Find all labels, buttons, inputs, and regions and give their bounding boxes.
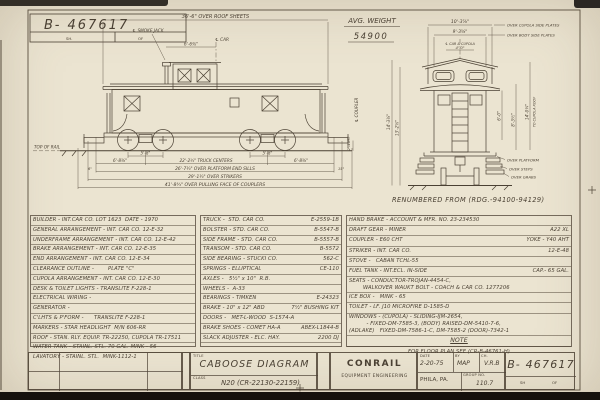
of-label-small: OF bbox=[552, 380, 557, 385]
spec-row: SIDE BEARING - STUCKI CO.562-C bbox=[201, 255, 341, 265]
spec-row: TRANSOM - STD. CAR CO.B-5572 bbox=[201, 245, 341, 255]
side-view-drawing bbox=[60, 63, 352, 157]
of-label: OF bbox=[138, 36, 143, 41]
spec-value: E-24323 bbox=[317, 294, 339, 303]
dim-end-right: 6'-8⅜" bbox=[294, 158, 308, 163]
scan-edge-artifact bbox=[574, 0, 600, 8]
spec-row: BEARINGS - TIMKENE-24323 bbox=[201, 294, 341, 304]
spec-label: BEARINGS - TIMKEN bbox=[203, 294, 256, 303]
spec-label: SIDE FRAME - STD. CAR CO. bbox=[203, 236, 278, 245]
checked-value: V.R.B bbox=[484, 360, 500, 367]
dwg-number-title-box: B- 467617 SH OF bbox=[505, 352, 575, 390]
spec-label: AXLES - 5½" x 10" R.B. bbox=[203, 275, 270, 284]
dim-body-plates-label: OVER BODY SIDE PLATES bbox=[507, 33, 555, 38]
renumbered-note: RENUMBERED FROM (RDG.-94100-94129) bbox=[392, 196, 544, 204]
by-label: BY bbox=[455, 354, 460, 358]
spec-line: - FIXED-DM-7585-3, (BODY) RAISED-DM-5410… bbox=[349, 321, 569, 328]
avg-weight: AVG. WEIGHT 54900 bbox=[344, 17, 400, 42]
side-view-dim-text: 36'-6" OVER ROOF SHEETS ℄ SMOKE JACK ℄ C… bbox=[34, 14, 359, 188]
spec-row: GENERAL ARRANGEMENT - INT. CAR CO. 12-E-… bbox=[31, 226, 195, 236]
spec-row: GENERATOR - bbox=[31, 304, 195, 314]
spec-row: CLEARANCE OUTLINE - PLATE "C" bbox=[31, 265, 195, 275]
dim-roof-sheets: 36'-6" OVER ROOF SHEETS bbox=[182, 14, 250, 20]
spec-row: C'LHTS & P'FORM - TRANSLITE F-228-1 bbox=[31, 314, 195, 324]
dim-truck-centers: 22'-2½" TRUCK CENTERS bbox=[180, 158, 233, 163]
department-name: EQUIPMENT ENGINEERING bbox=[331, 371, 418, 381]
dim-strikers: 29'-1¼" OVER STRIKERS bbox=[188, 174, 242, 180]
spec-row: UNDERFRAME ARRANGEMENT - INT. CAR CO. 12… bbox=[31, 236, 195, 246]
date-block-divider bbox=[453, 353, 454, 372]
spec-table-left-column: BUILDER - INT.CAR CO. LOT 1623 DATE - 19… bbox=[30, 215, 196, 347]
spec-value: ABEX-L1844-B bbox=[301, 324, 339, 333]
group-label: GROUP NO. bbox=[463, 373, 485, 377]
dim-wheelbase-left: 5'-8" bbox=[141, 151, 151, 156]
title-box: TITLE CABOOSE DIAGRAM CLASS N20 (CR-2213… bbox=[190, 352, 317, 390]
spec-row: AXLES - 5½" x 10" R.B. bbox=[201, 275, 341, 285]
end-view-drawing bbox=[408, 59, 512, 191]
revision-strip bbox=[28, 352, 182, 390]
dim-cl-car: ℄ CAR bbox=[215, 37, 229, 42]
dim-height-left-2: 13'-2⅝" bbox=[395, 120, 400, 136]
spec-value: 12-E-48 bbox=[548, 247, 569, 256]
dim-wheelbase-right: 5'-8" bbox=[263, 151, 273, 156]
title-block-spacer-cell bbox=[317, 352, 330, 390]
spec-row: SPRINGS - ELLIPTICALCE-110 bbox=[201, 265, 341, 275]
dim-end-left: 6'-8⅜" bbox=[113, 158, 127, 163]
checked-label: CH. bbox=[481, 354, 488, 358]
spec-label: ICE BOX - MINK - 65 bbox=[349, 293, 406, 302]
avg-weight-value: 54900 bbox=[354, 32, 389, 42]
spec-row: TOILET - LF. J10 MICROFIRE D-1585-D bbox=[347, 303, 571, 313]
spec-value: CAP.- 65 GAL. bbox=[533, 267, 569, 276]
dim-body-plates: 9'-3⅝" bbox=[453, 29, 468, 35]
dim-height-body: 8'-3½" bbox=[511, 113, 516, 127]
spec-value: 562-C bbox=[323, 255, 339, 264]
drawing-number: B- 467617 bbox=[44, 18, 129, 33]
dim-couplers: 41'-8¾" OVER PULLING FACE OF COUPLERS bbox=[165, 182, 266, 188]
spec-value: 2200 DJ bbox=[318, 334, 339, 343]
date-label: DATE bbox=[420, 354, 430, 358]
spec-row: BRAKE SHOES - COMET HA-AABEX-L1844-B bbox=[201, 324, 341, 334]
spec-value: 7½" BUSHING KIT bbox=[291, 304, 339, 313]
title-block-spacer-cell bbox=[182, 352, 190, 390]
revision-divider bbox=[59, 353, 60, 391]
caboose-diagram-sheet: B- 467617 SH. OF AVG. WEIGHT 54900 bbox=[0, 0, 600, 400]
over-grabs-label: OVER GRABS bbox=[511, 175, 537, 180]
spec-row: DRAFT GEAR - MINERA22 XL bbox=[347, 226, 571, 236]
spec-row: BRAKE - 10" x 12" ABD7½" BUSHING KIT bbox=[201, 304, 341, 314]
company-name: CONRAIL bbox=[331, 357, 418, 371]
cl-coupler-label: ℄ COUPLER bbox=[354, 98, 359, 123]
spec-row: DESK & TOILET LIGHTS - TRANSLITE F-228-1 bbox=[31, 285, 195, 295]
spec-label: STRIKER - INT. CAR CO. bbox=[349, 247, 411, 256]
office-location: PHILA, PA. bbox=[420, 377, 448, 383]
over-steps-label: OVER STEPS bbox=[509, 167, 533, 172]
dim-jack-to-cl: 6'-6⅜" bbox=[184, 42, 198, 47]
spec-label: HAND BRAKE - ACCOUNT & MFR. NO. 23-23453… bbox=[349, 216, 479, 225]
spec-label: COUPLER - E60 CHT bbox=[349, 236, 403, 245]
spec-label: BOLSTER - STD. CAR CO. bbox=[203, 226, 270, 235]
spec-label: TRANSOM - STD. CAR CO. bbox=[203, 245, 272, 254]
scan-edge-artifact bbox=[0, 0, 168, 6]
spec-label: BRAKE SHOES - COMET HA-A bbox=[203, 324, 281, 333]
end-view-dim-text: 10'-3⅞" OVER CUPOLA SIDE PLATES 9'-3⅝" O… bbox=[386, 19, 560, 180]
spec-row: ROOF - STAN. RLY. EQUIP. TR-22250, CUPOL… bbox=[31, 334, 195, 344]
dim-height-left-1: 14'-3⅛" bbox=[386, 114, 391, 130]
spec-value: CE-110 bbox=[320, 265, 339, 274]
spec-label: WHEELS - A-33 bbox=[203, 285, 245, 294]
company-box: CONRAIL EQUIPMENT ENGINEERING bbox=[330, 352, 417, 390]
spec-value: YOKE - Y40 AHT bbox=[527, 236, 569, 245]
avg-weight-label: AVG. WEIGHT bbox=[347, 17, 396, 25]
scan-edge-artifact bbox=[0, 40, 2, 390]
spec-row-seats: SEATS - CONDUCTOR-TROJAN-4454-C, WALKOVE… bbox=[347, 277, 571, 293]
spec-value: B-5557-B bbox=[314, 236, 339, 245]
over-platform-label: OVER PLATFORM bbox=[507, 158, 540, 163]
dim-six-ft: 6'-0" bbox=[497, 111, 502, 121]
spec-label: FUEL TANK - INT.ECL. IN-SIDE bbox=[349, 267, 427, 276]
spec-row: ELECTRICAL WIRING - bbox=[31, 294, 195, 304]
scan-edge-artifact bbox=[0, 392, 600, 400]
dim-fifteen-inch: 15" bbox=[338, 167, 345, 171]
spec-row: END ARRANGEMENT - INT. CAR CO. 12-E-34 bbox=[31, 255, 195, 265]
spec-row-windows: WINDOWS - (CUPOLA) - SLIDING-IJM-2654, -… bbox=[347, 314, 571, 336]
title-block: TITLE CABOOSE DIAGRAM CLASS N20 (CR-2213… bbox=[28, 352, 575, 390]
spec-label: TRUCK - STD. CAR CO. bbox=[203, 216, 265, 225]
sheet-label: SH. bbox=[66, 36, 72, 41]
sheet-label-small: SH bbox=[520, 380, 525, 385]
spec-label: SPRINGS - ELLIPTICAL bbox=[203, 265, 261, 274]
spec-value: A22 XL bbox=[550, 226, 569, 235]
spec-row: SIDE FRAME - STD. CAR CO.B-5557-B bbox=[201, 236, 341, 246]
dwg-box-divider bbox=[506, 376, 576, 377]
dim-cupola-plates-label: OVER CUPOLA SIDE PLATES bbox=[507, 23, 560, 28]
spec-label: SLACK ADJUSTER - ELC. HAY. bbox=[203, 334, 280, 343]
spec-value: B-5547-B bbox=[314, 226, 339, 235]
class-value: N20 (CR-22130-22159) bbox=[203, 376, 318, 390]
spec-line: (ADLAKE) FIXED-DM-7586-1-C, DM-7585-2 (D… bbox=[349, 328, 569, 335]
drawing-title: CABOOSE DIAGRAM bbox=[191, 355, 318, 373]
date-value: 2-20-75 bbox=[420, 360, 443, 367]
group-value: 110.7 bbox=[476, 380, 493, 387]
dim-to-cupola-roof-label: TO CUPOLA ROOF bbox=[533, 97, 537, 127]
date-block: DATE 2-20-75 BY MAP CH. V.R.B PHILA, PA.… bbox=[417, 352, 505, 390]
spec-row: DOORS - MET-L-WOOD S-1574-A bbox=[201, 314, 341, 324]
drawing-number-value: B- 467617 bbox=[506, 354, 576, 375]
spec-value: B-5572 bbox=[320, 245, 339, 254]
spec-row: ICE BOX - MINK - 65 bbox=[347, 293, 571, 303]
spec-row: HAND BRAKE - ACCOUNT & MFR. NO. 23-23453… bbox=[347, 216, 571, 226]
spec-label: DRAFT GEAR - MINER bbox=[349, 226, 406, 235]
spec-line: WALKOVER WAUKT BOLT - COACH & CAR CO. 12… bbox=[349, 285, 569, 292]
spec-row: FUEL TANK - INT.ECL. IN-SIDECAP.- 65 GAL… bbox=[347, 267, 571, 277]
spec-table-middle-column: TRUCK - STD. CAR CO.E-2559-1B BOLSTER - … bbox=[200, 215, 342, 347]
spec-label: STOVE - CABAN TCHL-55 bbox=[349, 257, 419, 266]
dim-platform-sills: 26'-7¼" OVER PLATFORM END SILLS bbox=[175, 166, 255, 172]
spec-row: STOVE - CABAN TCHL-55 bbox=[347, 257, 571, 267]
spec-row: SLACK ADJUSTER - ELC. HAY.2200 DJ bbox=[201, 334, 341, 344]
by-value: MAP bbox=[457, 360, 470, 367]
spec-label: TOILET - LF. J10 MICROFIRE D-1585-D bbox=[349, 303, 449, 312]
spec-row: TRUCK - STD. CAR CO.E-2559-1B bbox=[201, 216, 341, 226]
dim-coupler-height: 2'-10½" bbox=[346, 135, 351, 150]
spec-label: BRAKE - 10" x 12" ABD bbox=[203, 304, 265, 313]
spec-row: MARKERS - STAR HEADLIGHT M/N 606-RR bbox=[31, 324, 195, 334]
dim-height-cupola: 14'-0¼" bbox=[525, 104, 530, 120]
spec-row: BOLSTER - STD. CAR CO.B-5547-B bbox=[201, 226, 341, 236]
spec-row: CUPOLA ARRANGEMENT - INT. CAR CO. 12-E-3… bbox=[31, 275, 195, 285]
date-block-divider bbox=[461, 372, 462, 391]
spec-row: BUILDER - INT.CAR CO. LOT 1623 DATE - 19… bbox=[31, 216, 195, 226]
revision-divider bbox=[29, 371, 183, 372]
spec-line: SEATS - CONDUCTOR-TROJAN-4454-C, bbox=[349, 278, 569, 285]
spec-label: DOORS - MET-L-WOOD S-1574-A bbox=[203, 314, 294, 323]
date-block-divider bbox=[418, 372, 506, 373]
spec-row: BRAKE ARRANGEMENT - INT. CAR CO. 12-E-35 bbox=[31, 245, 195, 255]
top-of-rail-label: TOP OF RAIL bbox=[34, 145, 61, 150]
spec-value: E-2559-1B bbox=[311, 216, 339, 225]
date-block-divider bbox=[479, 353, 480, 372]
spec-row: WHEELS - A-33 bbox=[201, 285, 341, 295]
dim-smoke-jack: ℄ SMOKE JACK bbox=[132, 28, 164, 33]
note-heading: NOTE bbox=[347, 336, 571, 347]
spec-table-right-column: HAND BRAKE - ACCOUNT & MFR. NO. 23-23453… bbox=[346, 215, 572, 347]
spec-row: COUPLER - E60 CHTYOKE - Y40 AHT bbox=[347, 236, 571, 246]
spec-label: SIDE BEARING - STUCKI CO. bbox=[203, 255, 277, 264]
spec-row: STRIKER - INT. CAR CO.12-E-48 bbox=[347, 247, 571, 257]
spec-line: WINDOWS - (CUPOLA) - SLIDING-IJM-2654, bbox=[349, 314, 569, 321]
revision-divider bbox=[147, 353, 148, 391]
dim-six-inch: 6" bbox=[88, 167, 92, 171]
dim-cupola-plates: 10'-3⅞" bbox=[451, 19, 469, 25]
dim-four-ft: 4'-0" bbox=[456, 45, 465, 50]
